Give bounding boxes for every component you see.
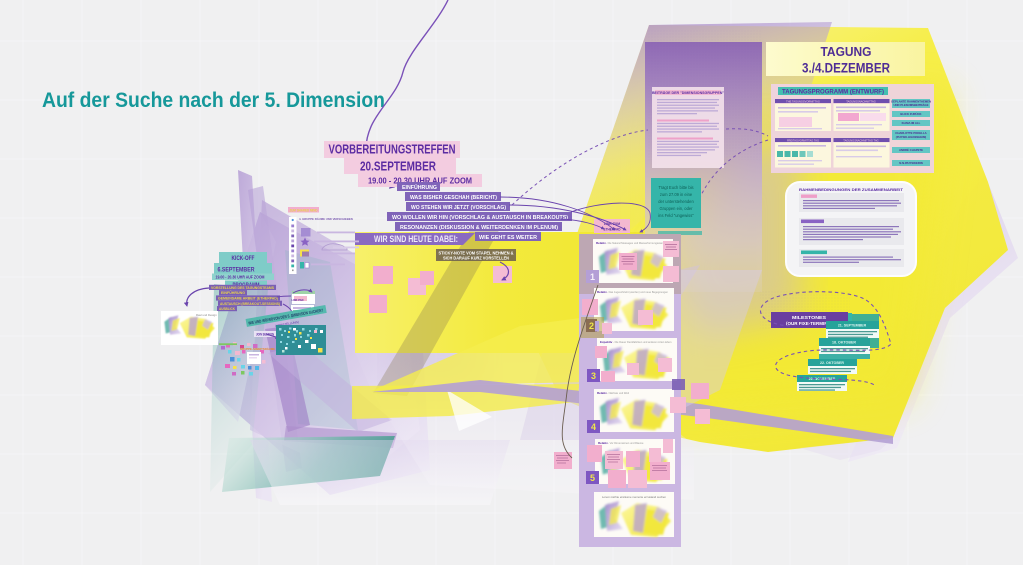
svg-text:VORSTELLUNG DES TAGUNGSTEAMS: VORSTELLUNG DES TAGUNGSTEAMS — [211, 285, 274, 290]
svg-text:WIE GEHT ES WEITER: WIE GEHT ES WEITER — [479, 235, 538, 241]
svg-text:TAGUNGSNACHMITTAG: TAGUNGSNACHMITTAG — [846, 99, 876, 103]
svg-text:AUSBLICK: AUSBLICK — [219, 306, 235, 311]
svg-text:RESONANZEN (DISKUSSION & WEITE: RESONANZEN (DISKUSSION & WEITERDENKEN IM… — [400, 225, 558, 231]
svg-text:BEITRÄGE DER "DIMENSIONSGRUPPE: BEITRÄGE DER "DIMENSIONSGRUPPEN" — [652, 91, 724, 95]
svg-text:WAS BISHER GESCHAH (BERICHT): WAS BISHER GESCHAH (BERICHT) — [410, 195, 497, 201]
svg-text:SICH DARAUF KURZ VORSTELLEN: SICH DARAUF KURZ VORSTELLEN — [443, 256, 510, 261]
svg-text:RAHMENBEDINGUNGEN DER ZUSAMMEN: RAHMENBEDINGUNGEN DER ZUSAMMENARBEIT — [799, 188, 904, 192]
svg-text:N.N./PHYSIKERIN: N.N./PHYSIKERIN — [899, 161, 922, 165]
svg-text:KLIMA IM ALL: KLIMA IM ALL — [902, 121, 921, 125]
svg-text:Gruppen ein, oder: Gruppen ein, oder — [660, 206, 694, 211]
svg-text:4. GRUPPE RÄUME UND VERSCHIEBE: 4. GRUPPE RÄUME UND VERSCHIEBEN — [299, 217, 353, 221]
svg-text:ANDRÉ CHAPETE: ANDRÉ CHAPETE — [899, 147, 923, 152]
svg-text:AUSTAUSCH (BREAKOUT-SESSIONS): AUSTAUSCH (BREAKOUT-SESSIONS) — [220, 301, 281, 306]
svg-text:VORBEREITUNGSTREFFEN: VORBEREITUNGSTREFFEN — [329, 143, 456, 157]
svg-text:3./4.DEZEMBER: 3./4.DEZEMBER — [802, 61, 890, 76]
svg-text:WO WOLLEN WIR HIN (VORSCHLAG &: WO WOLLEN WIR HIN (VORSCHLAG & AUSTAUSCH… — [392, 215, 568, 221]
svg-text:21. SEPTEMBER: 21. SEPTEMBER — [838, 324, 867, 328]
svg-text:20.SEPTEMBER: 20.SEPTEMBER — [360, 160, 436, 174]
svg-text:(OUR FIXE-TERMINE): (OUR FIXE-TERMINE) — [786, 321, 833, 326]
svg-text:WO STEHEN WIR JETZT (VORSCHLAG: WO STEHEN WIR JETZT (VORSCHLAG) — [411, 205, 506, 211]
svg-text:Relativ: Relativ — [598, 441, 608, 445]
svg-text:WIR SIND HEUTE DABEI:: WIR SIND HEUTE DABEI: — [374, 234, 458, 244]
svg-text:EINFÜHRUNG: EINFÜHRUNG — [221, 290, 245, 295]
svg-text:Auf der Suche nach der 5. Dime: Auf der Suche nach der 5. Dimension — [42, 88, 385, 112]
svg-text:ZUM SHARED MIND: ZUM SHARED MIND — [290, 208, 318, 212]
svg-text:19.00 - 20.30 UHR AUF ZOOM: 19.00 - 20.30 UHR AUF ZOOM — [216, 275, 265, 280]
svg-text:Expektiv: Expektiv — [600, 340, 613, 344]
svg-text:6.SEPTEMBER: 6.SEPTEMBER — [218, 267, 255, 274]
svg-text:Raul und Design: Raul und Design — [196, 313, 217, 317]
svg-text:FREITAGVORMITTAG TAG: FREITAGVORMITTAG TAG — [787, 138, 819, 142]
svg-text:EINFÜHRUNG: EINFÜHRUNG — [402, 184, 437, 191]
svg-text:Lorem nächte einräume memorie: Lorem nächte einräume memorie erzustand … — [602, 495, 666, 499]
svg-text:Relativ: Relativ — [596, 241, 606, 245]
svg-text:Relativ: Relativ — [597, 290, 607, 294]
svg-text:ins Feld "ungewiss": ins Feld "ungewiss" — [658, 213, 694, 218]
svg-text:der unterstehenden: der unterstehenden — [658, 199, 694, 204]
svg-text:GEMEINSAME ARBEIT (ETHERPAD): GEMEINSAME ARBEIT (ETHERPAD) — [218, 296, 279, 301]
svg-text:TAGUNGSNACHMITTAG TAG: TAGUNGSNACHMITTAG TAG — [843, 138, 878, 142]
svg-text:- Nächste und Welt: - Nächste und Welt — [607, 391, 629, 395]
svg-text:5: 5 — [590, 473, 595, 483]
svg-text:KICK-OFF: KICK-OFF — [232, 255, 255, 262]
svg-text:- Die Dauer Denkfabriken und a: - Die Dauer Denkfabriken und anderen Art… — [613, 340, 672, 344]
svg-text:(PHYSIK-HILDESHEIM): (PHYSIK-HILDESHEIM) — [896, 135, 927, 139]
svg-text:TAGUNG: TAGUNG — [821, 44, 872, 59]
svg-text:- Vor Dimensionen und Räume: - Vor Dimensionen und Räume — [608, 441, 644, 445]
svg-text:GRUPPE ARBEITSRÄUME: GRUPPE ARBEITSRÄUME — [240, 347, 275, 351]
svg-text:UND PLENUMSBEITRÄGE: UND PLENUMSBEITRÄGE — [894, 103, 929, 107]
svg-text:Tragt Euch bitte bis: Tragt Euch bitte bis — [658, 185, 693, 190]
svg-text:18. OKTOBER: 18. OKTOBER — [832, 341, 856, 345]
svg-text:4: 4 — [591, 422, 596, 432]
svg-text:2: 2 — [589, 321, 594, 331]
svg-text:TAGUNGSPROGRAMM (ENTWURF): TAGUNGSPROGRAMM (ENTWURF) — [782, 89, 884, 95]
svg-text:LINK PAD: LINK PAD — [291, 298, 303, 302]
svg-text:3: 3 — [591, 371, 596, 381]
svg-text:BLICK ZURÜCK: BLICK ZURÜCK — [900, 111, 921, 116]
svg-text:22. OKTOBER: 22. OKTOBER — [820, 361, 844, 365]
svg-text:- Das zugeschriebt (werden) un: - Das zugeschriebt (werden) und neue Beg… — [607, 290, 669, 294]
svg-text:1: 1 — [590, 272, 595, 282]
svg-text:Relativ: Relativ — [597, 391, 607, 395]
svg-text:zum 27.09 in eine: zum 27.09 in eine — [660, 192, 693, 197]
svg-text:THE TAGUNGSVORMITTAG: THE TAGUNGSVORMITTAG — [786, 99, 820, 103]
